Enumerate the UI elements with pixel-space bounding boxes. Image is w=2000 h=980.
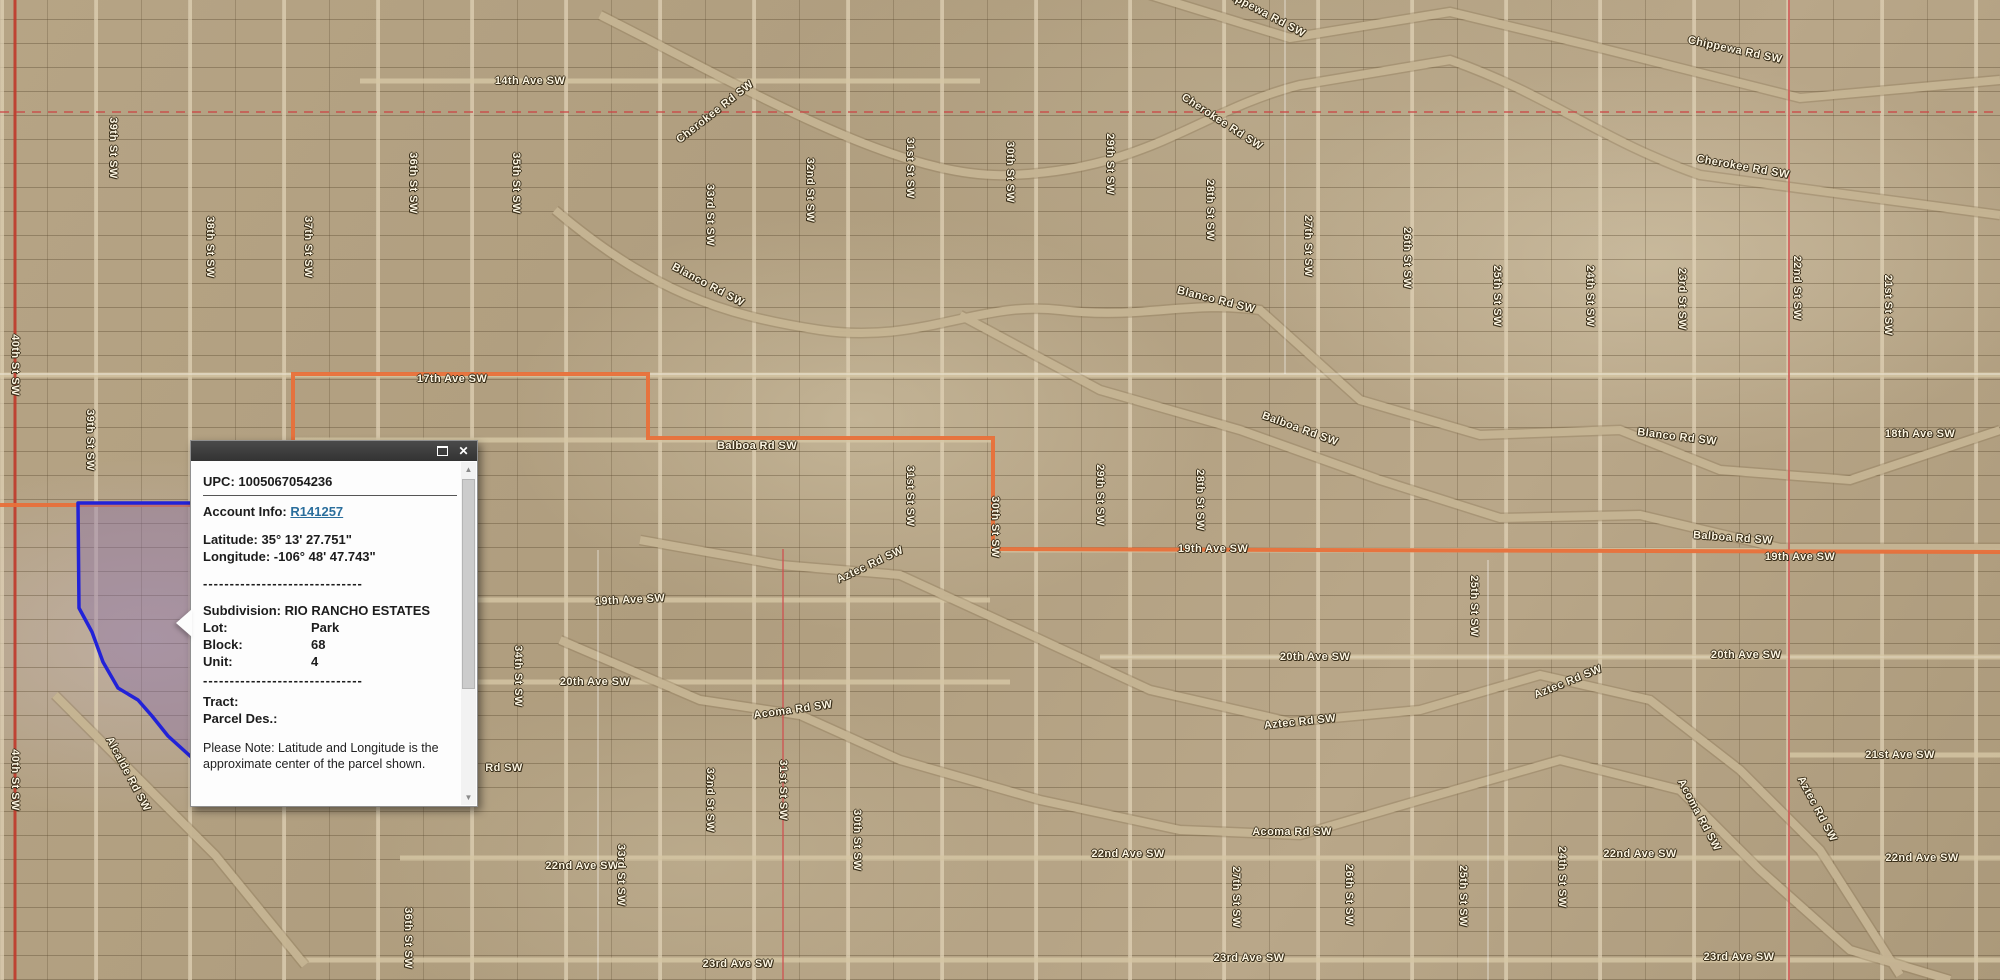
street-label: 26th St SW bbox=[1401, 227, 1413, 288]
block-value: 68 bbox=[311, 636, 325, 653]
popup-note: Please Note: Latitude and Longitude is t… bbox=[203, 741, 457, 772]
unit-value: 4 bbox=[311, 653, 318, 670]
street-label: 18th Ave SW bbox=[1885, 428, 1955, 440]
upc-value: 1005067054236 bbox=[238, 474, 332, 489]
street-label: 25th St SW bbox=[1457, 865, 1469, 926]
street-label: 21st St SW bbox=[1882, 275, 1894, 336]
popup-pointer bbox=[176, 609, 192, 637]
scroll-thumb[interactable] bbox=[462, 479, 475, 689]
street-label: 23rd Ave SW bbox=[1214, 952, 1285, 964]
lot-value: Park bbox=[311, 619, 339, 636]
unit-row: Unit: 4 bbox=[203, 653, 457, 670]
street-label: 22nd Ave SW bbox=[1091, 848, 1164, 860]
map-viewer: 39th St SW38th St SW37th St SW36th St SW… bbox=[0, 0, 2000, 980]
upc-row: UPC: 1005067054236 bbox=[203, 473, 457, 490]
longitude-value: -106° 48' 47.743" bbox=[274, 549, 376, 564]
maximize-icon bbox=[437, 446, 448, 456]
street-label: Acoma Rd SW bbox=[1252, 826, 1332, 838]
street-label: 24th St SW bbox=[1556, 846, 1568, 907]
street-label: 22nd Ave SW bbox=[1885, 852, 1958, 864]
longitude-row: Longitude: -106° 48' 47.743" bbox=[203, 548, 457, 565]
street-label: 23rd St SW bbox=[1676, 268, 1688, 330]
lot-label: Lot: bbox=[203, 619, 311, 636]
block-row: Block: 68 bbox=[203, 636, 457, 653]
latitude-row: Latitude: 35° 13' 27.751" bbox=[203, 531, 457, 548]
popup-scrollbar[interactable]: ▲ ▼ bbox=[461, 462, 476, 805]
street-label: 38th St SW bbox=[204, 216, 216, 277]
street-label: 31st St SW bbox=[777, 760, 789, 821]
street-label: 30th St SW bbox=[1004, 141, 1016, 202]
street-label: 24th St SW bbox=[1584, 265, 1596, 326]
maximize-button[interactable] bbox=[436, 445, 449, 457]
popup-content: UPC: 1005067054236 Account Info: R141257… bbox=[191, 461, 461, 806]
street-label: 32nd St SW bbox=[804, 158, 816, 223]
account-label: Account Info: bbox=[203, 504, 287, 519]
dashed-divider: ------------------------------ bbox=[203, 575, 457, 592]
street-label: 22nd Ave SW bbox=[545, 860, 618, 872]
street-label: 39th St SW bbox=[107, 117, 119, 178]
street-label: 20th Ave SW bbox=[1711, 649, 1781, 661]
scroll-up-button[interactable]: ▲ bbox=[461, 462, 476, 477]
street-label: 40th St SW bbox=[9, 749, 21, 810]
account-row: Account Info: R141257 bbox=[203, 503, 457, 520]
street-label: 35th St SW bbox=[510, 152, 522, 213]
street-label: 22nd Ave SW bbox=[1603, 848, 1676, 860]
street-label: 27th St SW bbox=[1302, 215, 1314, 276]
street-label: 28th St SW bbox=[1194, 469, 1206, 530]
street-label: 26th St SW bbox=[1343, 864, 1355, 925]
street-label: 31st St SW bbox=[904, 138, 916, 199]
close-button[interactable]: ✕ bbox=[457, 445, 470, 457]
tract-row: Tract: bbox=[203, 693, 457, 710]
street-label: 20th Ave SW bbox=[1280, 651, 1350, 663]
longitude-label: Longitude: bbox=[203, 549, 270, 564]
dashed-divider: ------------------------------ bbox=[203, 672, 457, 689]
popup-titlebar: ✕ bbox=[191, 441, 477, 461]
scroll-down-button[interactable]: ▼ bbox=[461, 790, 476, 805]
lot-row: Lot: Park bbox=[203, 619, 457, 636]
street-label: 39th St SW bbox=[84, 409, 96, 470]
street-label: 32nd St SW bbox=[704, 768, 716, 833]
street-label: 30th St SW bbox=[989, 496, 1001, 557]
street-label: 20th Ave SW bbox=[560, 676, 630, 688]
parcel-des-row: Parcel Des.: bbox=[203, 710, 457, 727]
latitude-value: 35° 13' 27.751" bbox=[262, 532, 352, 547]
street-label: 33rd St SW bbox=[615, 844, 627, 906]
subdivision-label: Subdivision: bbox=[203, 603, 281, 618]
street-label: Balboa Rd SW bbox=[717, 440, 797, 452]
street-label: 31st St SW bbox=[904, 466, 916, 527]
account-link[interactable]: R141257 bbox=[290, 504, 343, 519]
street-label: 30th St SW bbox=[851, 809, 863, 870]
street-label: 21st Ave SW bbox=[1865, 749, 1935, 761]
street-label: 37th St SW bbox=[302, 216, 314, 277]
street-label: 27th St SW bbox=[1230, 866, 1242, 927]
street-label: 14th Ave SW bbox=[495, 75, 565, 87]
unit-label: Unit: bbox=[203, 653, 311, 670]
block-label: Block: bbox=[203, 636, 311, 653]
street-label: 36th St SW bbox=[402, 907, 414, 968]
street-label: 40th St SW bbox=[9, 334, 21, 395]
street-label: 19th Ave SW bbox=[1765, 551, 1835, 563]
latitude-label: Latitude: bbox=[203, 532, 258, 547]
street-label: 25th St SW bbox=[1491, 265, 1503, 326]
street-label: 29th St SW bbox=[1104, 133, 1116, 194]
street-label: 34th St SW bbox=[512, 645, 524, 706]
street-label: 29th St SW bbox=[1094, 464, 1106, 525]
street-label: 22nd St SW bbox=[1791, 256, 1803, 321]
close-icon: ✕ bbox=[458, 445, 468, 457]
street-label: 23rd Ave SW bbox=[703, 958, 774, 970]
street-label: 19th Ave SW bbox=[1178, 543, 1248, 555]
divider bbox=[203, 495, 457, 496]
street-label: 17th Ave SW bbox=[417, 373, 487, 385]
street-label: 23rd Ave SW bbox=[1704, 951, 1775, 963]
street-label: Rd SW bbox=[485, 762, 522, 774]
street-label: 28th St SW bbox=[1204, 179, 1216, 240]
street-label: 33rd St SW bbox=[704, 184, 716, 246]
parcel-info-popup: ✕ UPC: 1005067054236 Account Info: R1412… bbox=[190, 440, 478, 807]
street-label: 36th St SW bbox=[407, 152, 419, 213]
street-label: 25th St SW bbox=[1468, 575, 1480, 636]
subdivision-row: Subdivision: RIO RANCHO ESTATES bbox=[203, 602, 457, 619]
subdivision-value: RIO RANCHO ESTATES bbox=[285, 603, 430, 618]
upc-label: UPC: bbox=[203, 474, 235, 489]
